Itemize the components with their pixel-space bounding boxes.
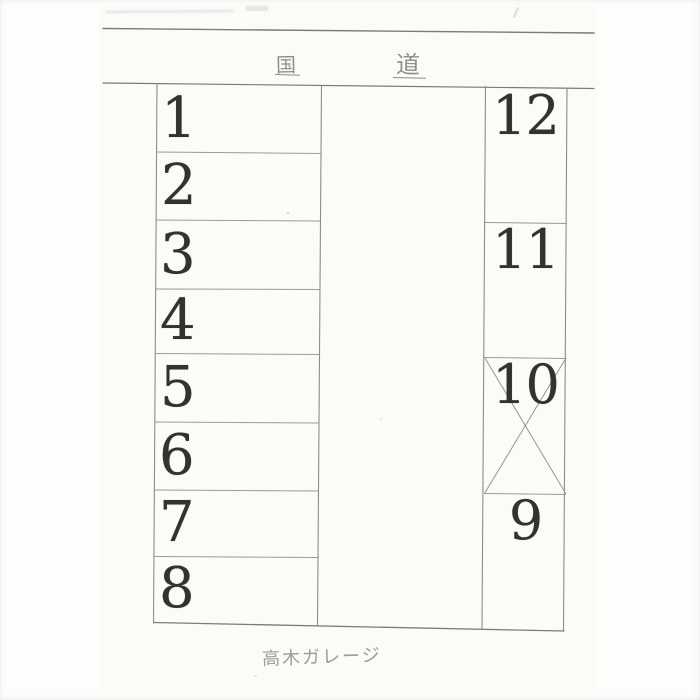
garage-caption: 高木ガレージ [262,641,382,671]
parking-space-7: 7 [154,490,317,556]
parking-space-number: 6 [159,428,194,484]
parking-space-number: 5 [160,360,195,416]
parking-space-10: 10 [484,357,567,493]
parking-space-number: 8 [159,561,194,617]
road-label-kanji-right: 道 [396,45,421,80]
parking-space-number: 9 [509,494,542,548]
parking-space-number: 12 [492,89,559,143]
parking-space-11: 11 [484,222,567,357]
parking-space-number: 7 [159,495,194,551]
parking-space-3: 3 [155,220,318,289]
parking-space-number: 2 [161,158,196,214]
parking-space-5: 5 [155,353,318,422]
scanned-parking-diagram: 国 道 1 2 3 4 5 6 7 8 12 11 10 9 高木ガレージ [0,0,700,700]
parking-space-2: 2 [156,152,319,220]
parking-space-12: 12 [484,88,567,222]
parking-space-8: 8 [154,556,317,622]
road-edge-lines [103,29,594,89]
parking-space-number: 10 [492,358,559,412]
parking-space-6: 6 [154,422,317,490]
parking-space-number: 3 [160,227,195,283]
parking-space-number: 1 [161,91,196,147]
parking-space-number: 11 [492,223,559,277]
road-label-kanji-left: 国 [276,49,297,78]
parking-space-4: 4 [155,289,318,353]
parking-space-1: 1 [156,85,319,152]
parking-space-9: 9 [484,493,567,629]
driveway-area [321,85,485,628]
parking-space-number: 4 [160,293,195,349]
